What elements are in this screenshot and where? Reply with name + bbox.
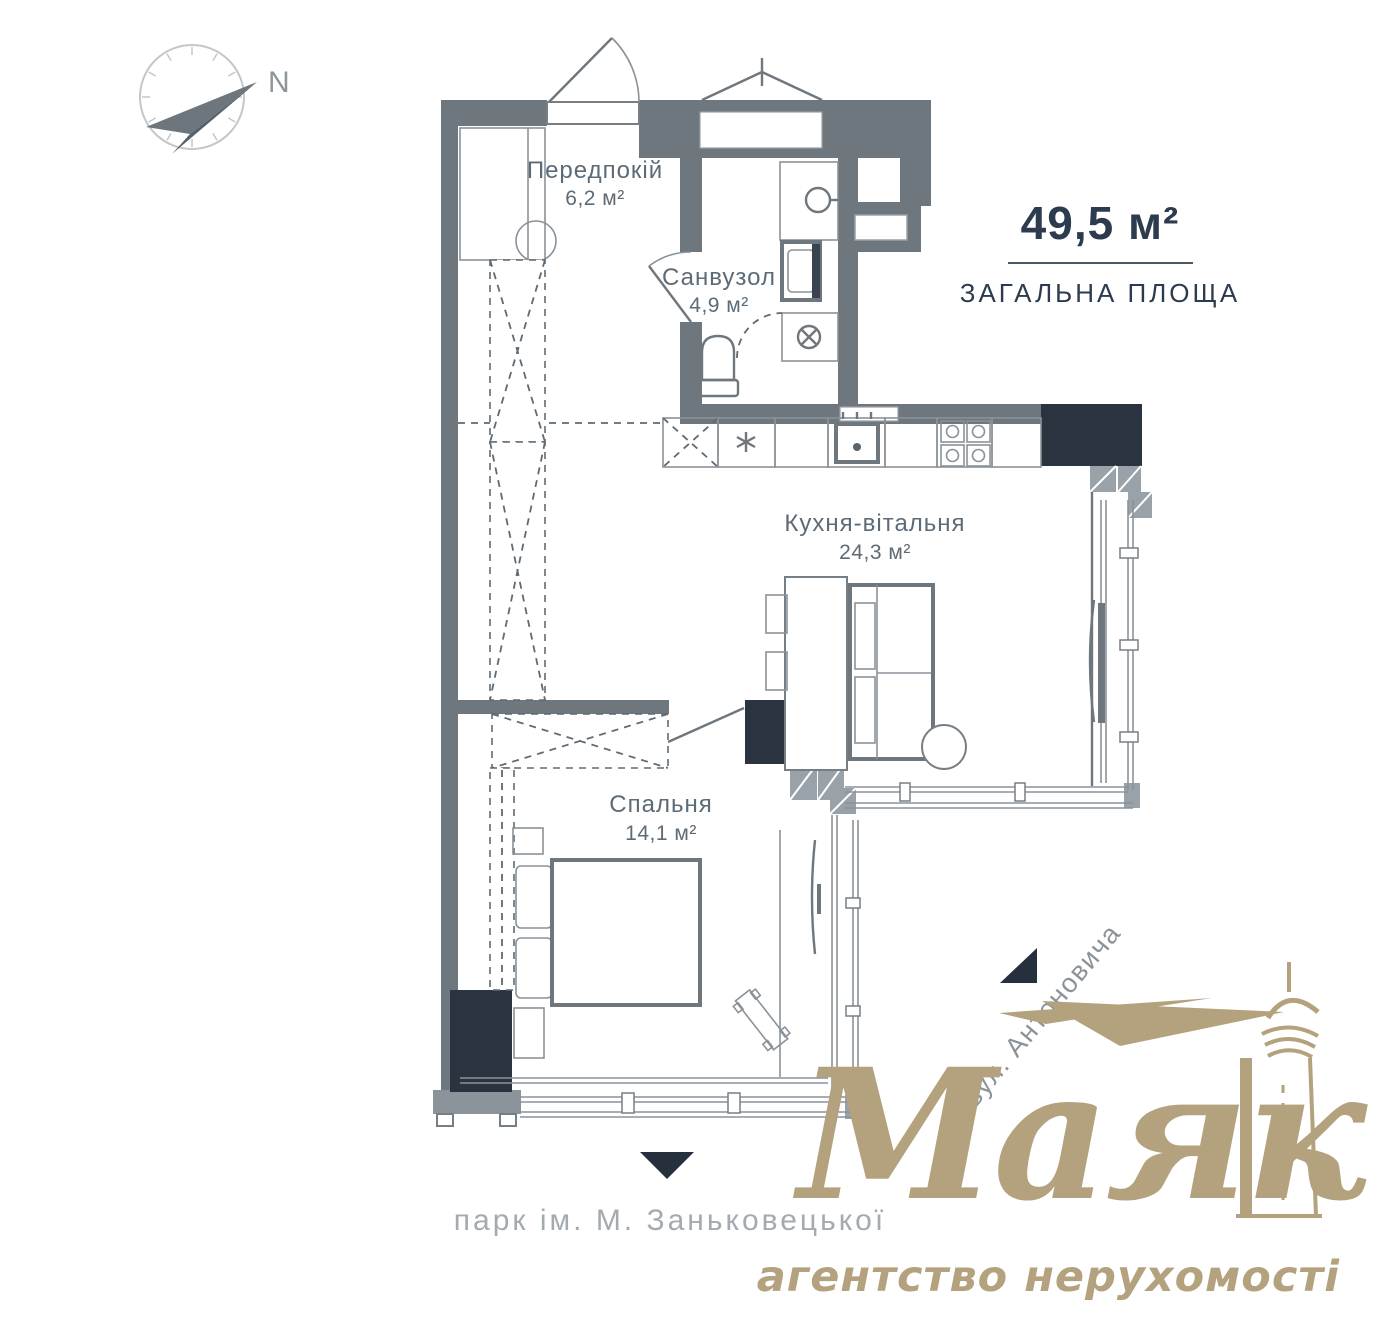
entrance-door-sill [547, 102, 639, 124]
stool [766, 595, 787, 633]
pillow [516, 866, 552, 928]
sink-icon [806, 188, 830, 212]
room-area-bath: 4,9 м² [689, 294, 748, 317]
compass-icon: N [140, 45, 290, 154]
curtain [812, 840, 815, 954]
nightstand [514, 1008, 544, 1058]
area-summary: 49,5 м² ЗАГАЛЬНА ПЛОЩА [955, 196, 1245, 309]
duct-shaft [855, 215, 907, 240]
nightstand [513, 828, 543, 854]
room-name-hall: Передпокій [527, 157, 663, 184]
total-area-value: 49,5 м² [955, 196, 1245, 250]
total-area-label: ЗАГАЛЬНА ПЛОЩА [955, 278, 1245, 309]
floorplan-page: N [0, 0, 1400, 1332]
pass-through-window [840, 407, 898, 421]
snowflake-icon [737, 432, 755, 452]
entry-niche [700, 112, 822, 148]
round-table [922, 725, 966, 769]
living-furniture [766, 577, 966, 770]
compass-north-label: N [268, 66, 290, 99]
sofa [850, 585, 933, 759]
room-area-kitchen: 24,3 м² [839, 541, 911, 564]
street-arrow-icon [1000, 948, 1037, 983]
toilet-icon [698, 380, 738, 396]
bed [552, 860, 700, 1005]
room-name-bath: Санвузол [662, 264, 776, 291]
logo-wordmark: Маяк [798, 1046, 1363, 1226]
room-area-bedroom: 14,1 м² [625, 822, 697, 845]
pillow [516, 938, 552, 998]
bar-counter [785, 577, 847, 770]
room-area-hall: 6,2 м² [565, 187, 624, 210]
summary-divider [1008, 262, 1193, 264]
logo-tagline: агентство нерухомості [690, 1252, 1340, 1302]
room-name-bedroom: Спальня [609, 791, 712, 818]
park-arrow-icon [640, 1152, 694, 1179]
stool [766, 652, 787, 690]
bedroom-furniture [513, 828, 792, 1058]
easel [731, 987, 791, 1053]
tv-unit [1098, 603, 1105, 723]
room-name-kitchen: Кухня-вітальня [784, 510, 965, 537]
